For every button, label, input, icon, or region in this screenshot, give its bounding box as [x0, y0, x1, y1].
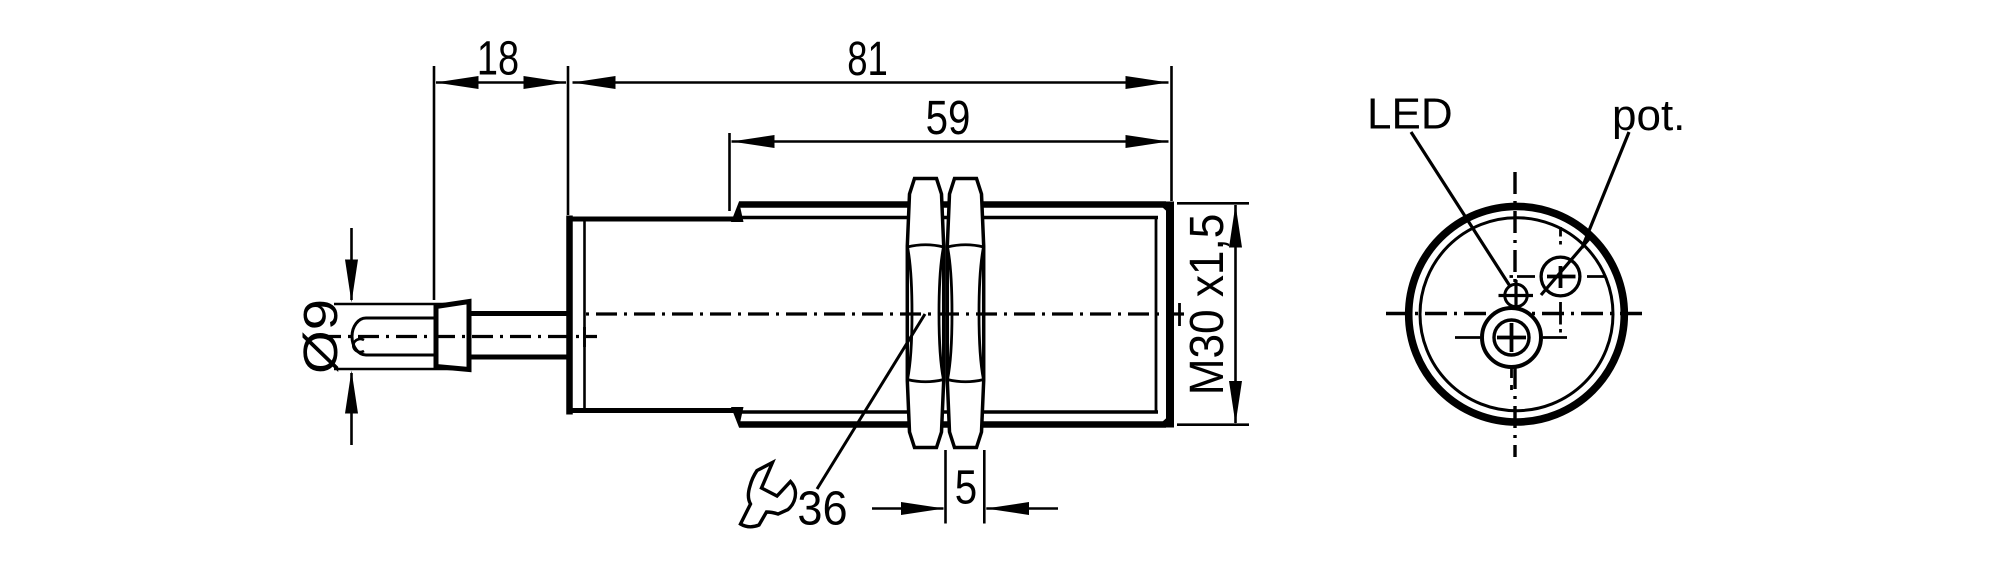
svg-text:M30 x1,5: M30 x1,5 [1179, 214, 1233, 396]
svg-text:18: 18 [477, 32, 519, 85]
svg-text:LED: LED [1367, 90, 1453, 139]
svg-text:81: 81 [847, 32, 888, 86]
svg-text:5: 5 [955, 461, 977, 514]
svg-text:36: 36 [797, 481, 847, 535]
svg-text:Ø9: Ø9 [295, 299, 348, 374]
svg-text:59: 59 [926, 92, 971, 145]
svg-text:pot.: pot. [1612, 91, 1685, 140]
